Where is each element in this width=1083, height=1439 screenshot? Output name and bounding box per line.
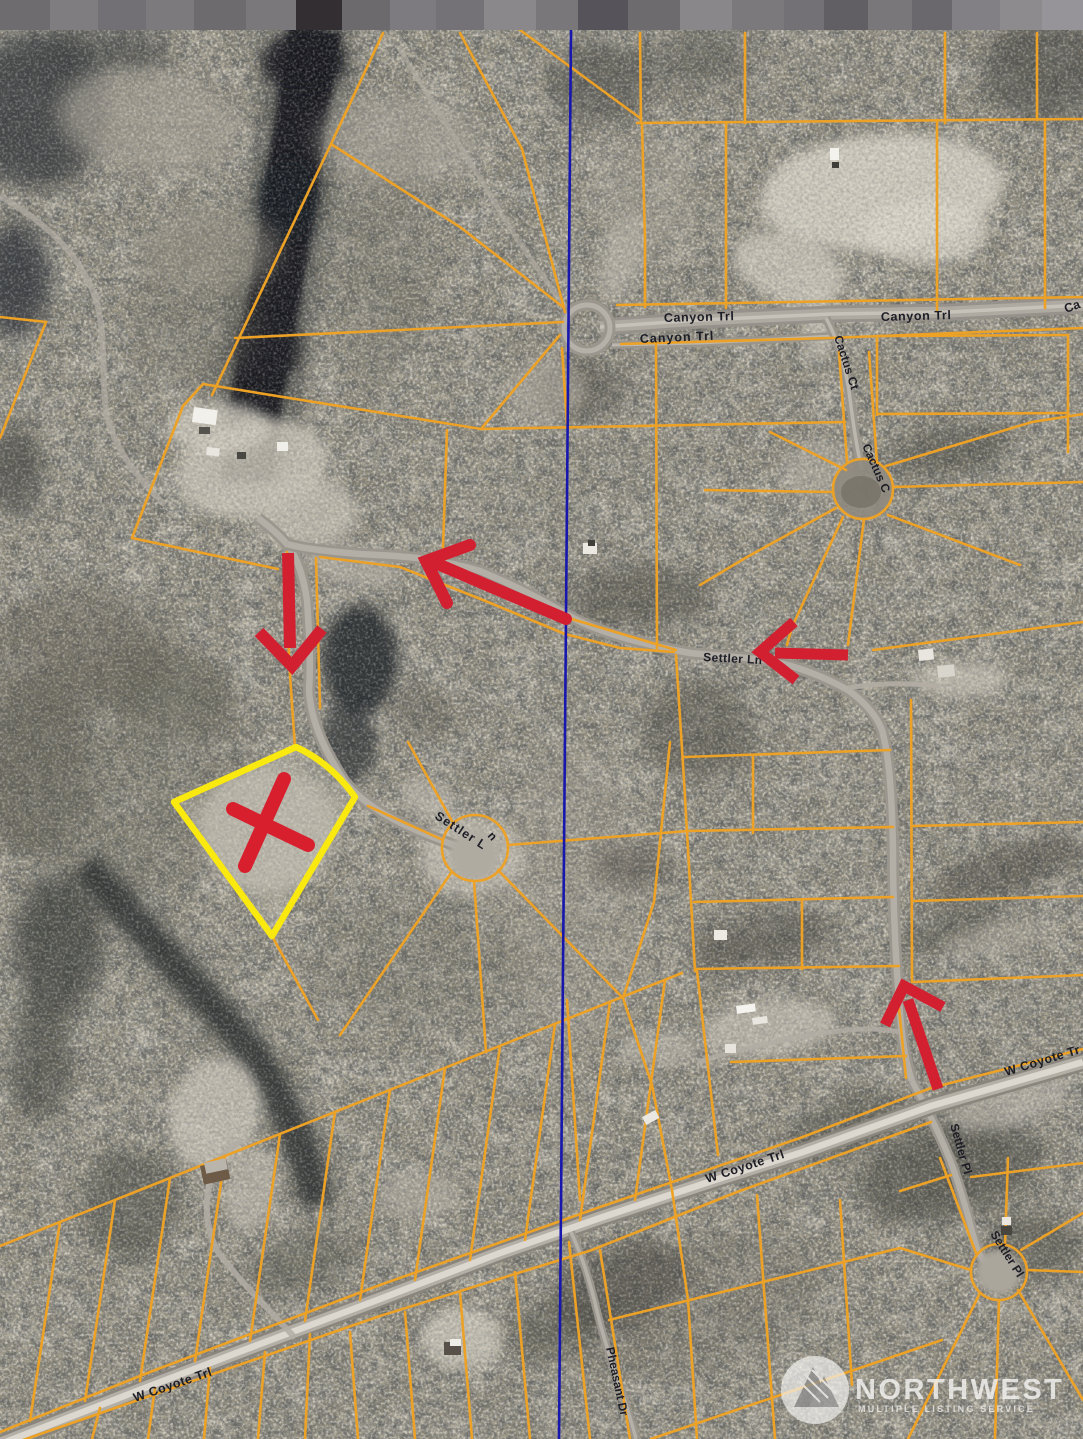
svg-text:MULTIPLE LISTING SERVICE: MULTIPLE LISTING SERVICE xyxy=(858,1404,1035,1414)
svg-text:Canyon Trl: Canyon Trl xyxy=(664,309,735,325)
svg-text:NORTHWEST: NORTHWEST xyxy=(855,1374,1064,1406)
svg-text:Canyon Trl: Canyon Trl xyxy=(881,308,952,324)
